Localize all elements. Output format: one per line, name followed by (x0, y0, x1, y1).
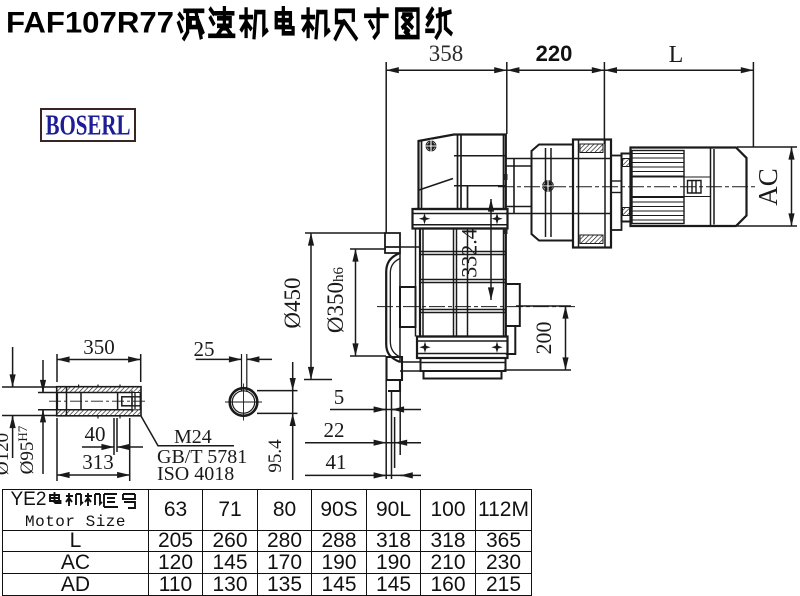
svg-text:41: 41 (326, 450, 347, 474)
svg-text:220: 220 (536, 41, 573, 66)
svg-text:Ø450: Ø450 (280, 277, 305, 328)
svg-text:22: 22 (324, 418, 345, 442)
svg-text:Ø350h6: Ø350h6 (323, 266, 348, 333)
svg-text:358: 358 (429, 41, 464, 66)
svg-text:25: 25 (194, 337, 215, 361)
svg-text:350: 350 (83, 335, 115, 359)
svg-text:332.4: 332.4 (457, 228, 482, 278)
svg-text:Ø95H7: Ø95H7 (15, 425, 38, 474)
svg-text:M24: M24 (174, 426, 212, 448)
svg-text:AC: AC (753, 168, 783, 206)
svg-text:5: 5 (334, 385, 345, 409)
svg-text:200: 200 (531, 322, 556, 355)
svg-text:95.4: 95.4 (265, 439, 286, 473)
svg-text:L: L (669, 42, 684, 68)
svg-text:Ø120: Ø120 (0, 433, 13, 475)
svg-text:313: 313 (82, 450, 114, 474)
svg-text:ISO 4018: ISO 4018 (157, 463, 234, 485)
svg-text:40: 40 (85, 422, 106, 446)
